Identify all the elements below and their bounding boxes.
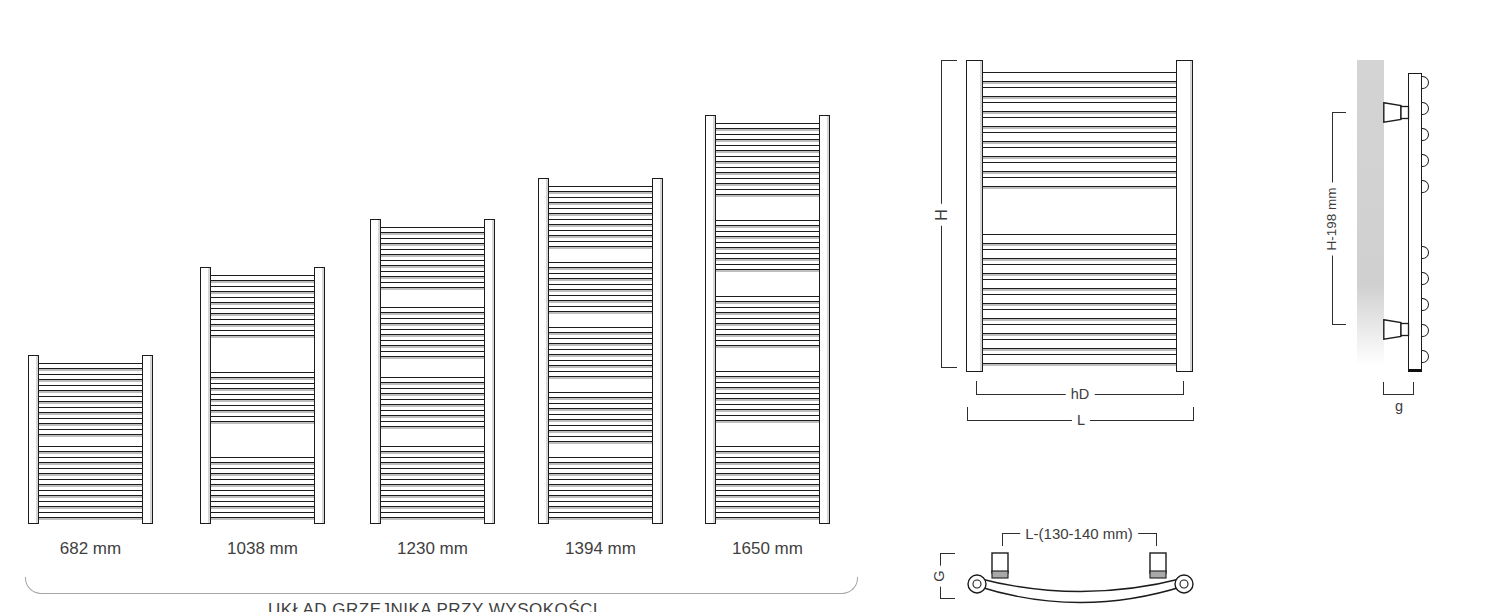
rung [378,307,487,313]
dim-H-tick-bottom [941,367,957,368]
rung [980,132,1179,142]
rung [36,468,145,474]
rung [378,318,487,324]
rung [378,457,487,463]
collector-tube-left [200,267,211,524]
rung [546,262,655,268]
rung [378,388,487,394]
curved-rung-top-edge [977,578,1184,592]
rung [36,479,145,485]
collector-tube-left [705,115,716,524]
dim-hD-tick-right [1183,381,1184,395]
rung [208,372,317,378]
rung [378,399,487,405]
dim-L130-tick-left [1002,533,1003,546]
rung [713,189,822,195]
rung [546,306,655,312]
rung [378,501,487,507]
rung [713,415,822,421]
rung [980,324,1179,334]
rung [546,241,655,247]
dim-L130-tick-right [1156,533,1157,546]
rung [546,414,655,420]
rung [980,234,1179,244]
rung [208,394,317,400]
rung [546,436,655,442]
rung [208,468,317,474]
rung [546,219,655,225]
rung [208,308,317,314]
dim-H198-label: H-198 mm [1325,182,1340,255]
rung [378,446,487,452]
rung [208,457,317,463]
rung [36,446,145,452]
rung [546,457,655,463]
rung [546,230,655,236]
rung [36,396,145,402]
variant-height-label: 1394 mm [538,539,663,559]
rung [36,385,145,391]
rung [378,377,487,383]
radiator-dimension-diagram: 682 mm1038 mm1230 mm1394 mm1650 mm UKŁAD… [0,0,1504,612]
rung [208,512,317,518]
rung [980,177,1179,187]
rung [208,479,317,485]
rung [378,329,487,335]
dim-H-tick-top [941,60,957,61]
rung [378,271,487,277]
rung [713,393,822,399]
rung [378,479,487,485]
variant-height-label: 682 mm [28,539,153,559]
dim-H-label: H [933,204,951,226]
rung [36,429,145,435]
rung [36,512,145,518]
rung [546,512,655,518]
wall-surface [1357,60,1384,372]
rung [980,102,1179,112]
rung [713,404,822,410]
rung [546,479,655,485]
rung [713,468,822,474]
rung [980,87,1179,97]
collector-tube-right [142,355,153,524]
rung [980,294,1179,304]
rung [378,227,487,233]
radiator-variant-3 [370,219,495,524]
rung [546,490,655,496]
rung [208,405,317,411]
rung [36,490,145,496]
dim-G-tick-bottom [940,598,955,599]
rung [980,279,1179,289]
rung [378,238,487,244]
rung [378,410,487,416]
rung [546,371,655,377]
collector-tube-right [652,178,663,524]
curved-rung-bottom-edge [977,586,1184,603]
front-view-radiator [966,60,1193,372]
rung [713,264,822,270]
dim-H198-tick-top [1332,112,1346,113]
rung [980,339,1179,349]
rung [980,354,1179,364]
dim-L-label: L [1072,413,1090,429]
rung [546,360,655,366]
rung [546,197,655,203]
rung [36,407,145,413]
radiator-variant-2 [200,267,325,524]
variant-height-label: 1230 mm [370,539,495,559]
rung [378,351,487,357]
rung [208,297,317,303]
wall-bracket-upper [1383,102,1410,123]
dim-L-tick-right [1193,407,1194,421]
rung [546,425,655,431]
variants-caption: UKŁAD GRZEJNIKA PRZY WYSOKOŚCI [183,600,683,612]
collector-tube-left [28,355,39,524]
top-bracket-right [1150,553,1166,573]
rung [378,490,487,496]
rung [546,349,655,355]
top-bracket-left [992,553,1008,573]
rung [208,330,317,336]
rung [36,501,145,507]
rung [546,327,655,333]
rung [713,318,822,324]
rung [713,340,822,346]
dim-g-tick-right [1413,382,1414,395]
rung [208,275,317,281]
rung [546,392,655,398]
rung [378,260,487,266]
rung [713,371,822,377]
rung [378,282,487,288]
rung [546,468,655,474]
dim-L130-label: L-(130-140 mm) [1020,526,1138,543]
dim-G-label: G [932,565,948,586]
rung [713,242,822,248]
rung [980,72,1179,82]
wall-bracket-lower [1383,319,1410,340]
dim-g-line [1383,394,1414,395]
rung [208,501,317,507]
collector-tube-left [370,219,381,524]
collector-tube-right [1176,60,1193,372]
rung [546,186,655,192]
rung [208,490,317,496]
rung [546,284,655,290]
radiator-variant-4 [538,178,663,524]
rung [546,338,655,344]
rung [36,457,145,463]
rung [713,231,822,237]
grouping-brace [25,577,858,594]
rung [378,468,487,474]
rung [36,374,145,380]
rung [713,123,822,129]
side-collector-tube [1408,73,1422,372]
rung [713,156,822,162]
rung [546,273,655,279]
rung [378,340,487,346]
rung [713,329,822,335]
dim-hD-label: hD [1066,387,1095,403]
rung [713,145,822,151]
rung [378,512,487,518]
rung [36,363,145,369]
rung [713,178,822,184]
rung [546,501,655,507]
rung [713,479,822,485]
rung [713,296,822,302]
dim-g-tick-left [1383,382,1384,395]
rung [713,457,822,463]
rung [980,117,1179,127]
radiator-variant-5 [705,115,830,524]
rung [713,501,822,507]
rung [713,220,822,226]
rung [546,295,655,301]
dim-H198-tick-bottom [1332,324,1346,325]
dim-L-tick-left [967,407,968,421]
variant-height-label: 1650 mm [705,539,830,559]
dim-G-tick-top [940,553,955,554]
rung [208,319,317,325]
rung [980,249,1179,259]
rung [980,162,1179,172]
rung [713,253,822,259]
variant-height-label: 1038 mm [200,539,325,559]
rung [713,446,822,452]
rung [713,134,822,140]
rung [980,147,1179,157]
rung [546,403,655,409]
rung [378,249,487,255]
dim-hD-tick-left [976,381,977,395]
rung [713,512,822,518]
dim-g-label: g [1390,399,1408,415]
rung [980,264,1179,274]
rung [713,382,822,388]
rung [713,490,822,496]
rung [546,208,655,214]
collector-tube-left [538,178,549,524]
rung [980,309,1179,319]
collector-tube-right [819,115,830,524]
collector-tube-right [314,267,325,524]
radiator-variant-1 [28,355,153,524]
rung [713,167,822,173]
rung [713,307,822,313]
collector-tube-right [484,219,495,524]
rung [36,418,145,424]
rung [208,383,317,389]
rung [208,416,317,422]
rung [208,286,317,292]
collector-tube-left [966,60,983,372]
rung [378,421,487,427]
